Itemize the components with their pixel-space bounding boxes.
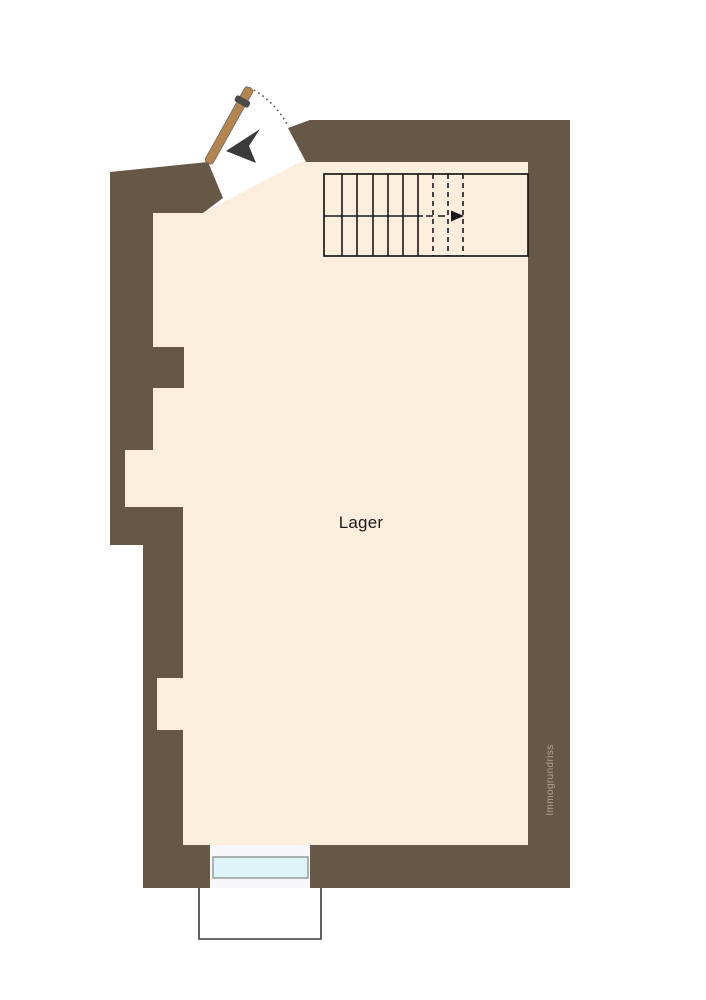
window (199, 845, 321, 939)
room-label: Lager (339, 513, 384, 532)
entry-door (201, 84, 288, 167)
door-swing-arc-icon (250, 88, 288, 126)
entry-direction-arrow-icon (226, 129, 260, 163)
watermark-label: Immogrundriss (545, 744, 556, 815)
room-floor (125, 162, 528, 845)
window-exterior-outline (199, 888, 321, 939)
floorplan-svg: Lager Immogrundriss (0, 0, 706, 1000)
window-glass-icon (213, 857, 308, 878)
floorplan-canvas: Lager Immogrundriss (0, 0, 706, 1000)
